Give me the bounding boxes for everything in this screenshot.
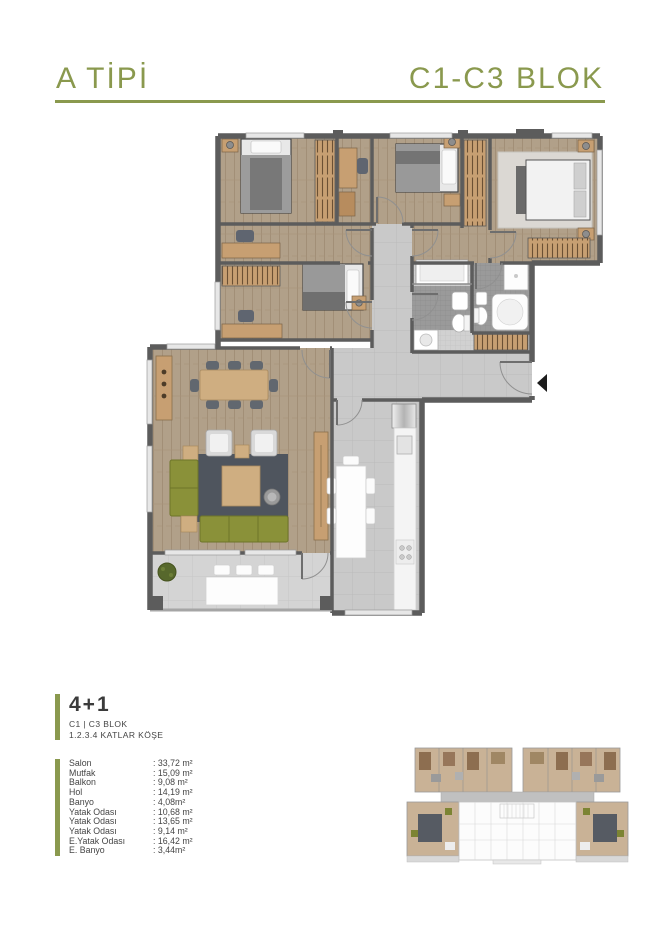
brochure-page: A TİPİ C1-C3 BLOK	[0, 0, 660, 933]
header-divider	[55, 100, 605, 103]
unit-layout-label: 4+1	[69, 694, 163, 716]
unit-block-info: C1 | C3 BLOK	[69, 719, 163, 730]
page-title-type: A TİPİ	[56, 62, 149, 96]
room-area-list: Salon: 33,72 m² Mutfak: 15,09 m² Balkon:…	[55, 759, 193, 856]
key-plan-right-living	[576, 802, 628, 862]
key-plan	[405, 744, 630, 866]
room-list-item: E. Banyo: 3,44m²	[69, 846, 193, 856]
key-plan-core	[459, 802, 576, 864]
entrance-arrow-icon	[537, 374, 547, 392]
key-plan-left-living	[407, 802, 459, 862]
key-plan-right-wing	[523, 748, 620, 792]
key-plan-left-wing	[415, 748, 512, 792]
unit-floor-info: 1.2.3.4 KATLAR KÖŞE	[69, 730, 163, 741]
page-title-block: C1-C3 BLOK	[409, 62, 604, 96]
unit-info-block: 4+1 C1 | C3 BLOK 1.2.3.4 KATLAR KÖŞE	[55, 694, 163, 740]
floor-plan	[130, 118, 640, 630]
key-plan-connector	[441, 792, 594, 802]
